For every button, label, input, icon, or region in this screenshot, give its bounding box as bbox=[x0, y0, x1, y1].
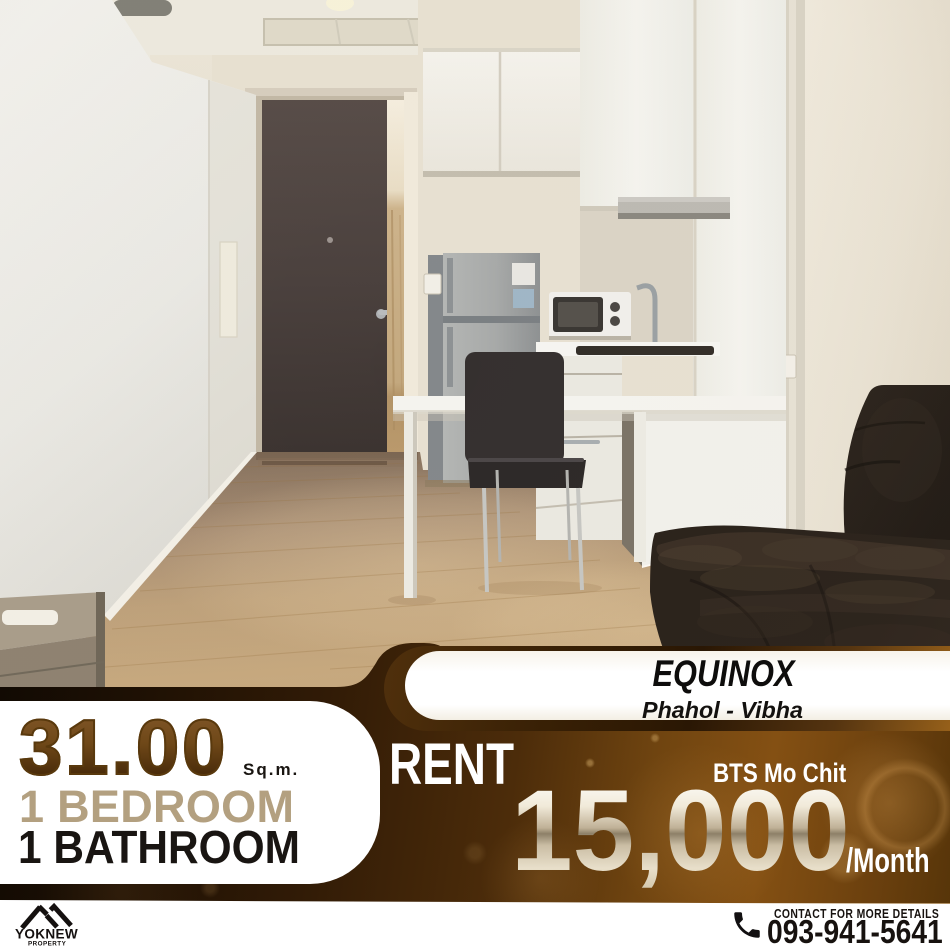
svg-text:PROPERTY: PROPERTY bbox=[28, 941, 67, 948]
svg-text:YOKNEW: YOKNEW bbox=[15, 927, 78, 942]
